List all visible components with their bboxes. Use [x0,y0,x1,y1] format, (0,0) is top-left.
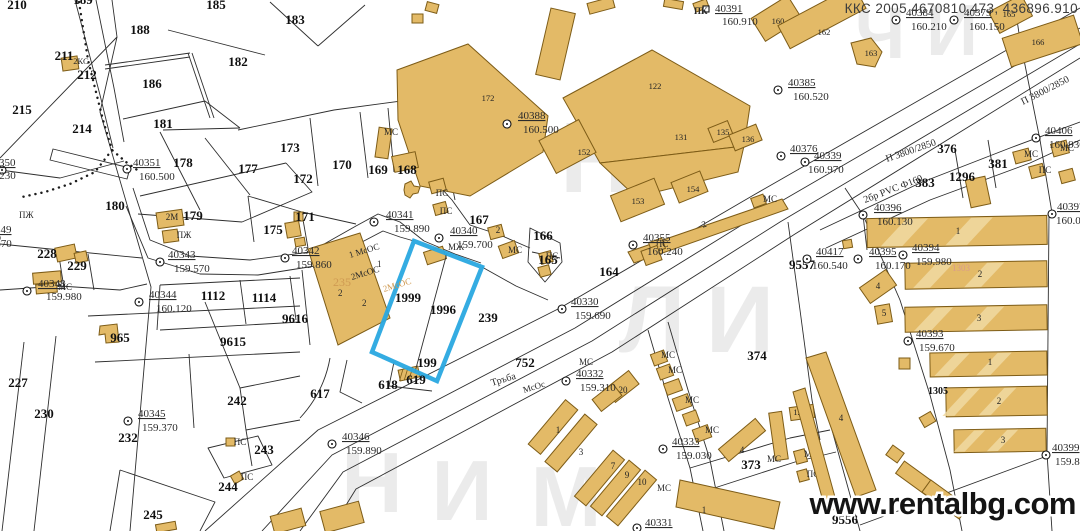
building-label: 166 [1032,37,1045,47]
survey-point-id-40397: 40397 [1057,201,1080,213]
parcel-label-965: 965 [110,330,130,345]
survey-point-dot-40379 [953,19,955,21]
survey-point-elevation-40339: 160.970 [808,164,844,176]
survey-point-elevation-40391: 160.910 [722,16,758,28]
building-label: 153 [632,196,645,206]
building [718,418,765,461]
parcel-label-183: 183 [285,12,305,27]
survey-point-id-40391: 40391 [715,3,743,15]
survey-point-id-40346: 40346 [342,431,370,443]
parcel-label-169: 169 [368,162,388,177]
parcel-label-166: 166 [533,228,553,243]
survey-point-elevation-40351: 160.500 [139,171,175,183]
parcel-label-1114: 1114 [252,290,277,305]
parcel-label-242: 242 [227,393,247,408]
building-label: МС [685,395,699,405]
survey-point-elevation-40343: 159.570 [174,263,210,275]
survey-point-dot-40331 [636,527,638,529]
survey-point-id-40345: 40345 [138,408,166,420]
parcel-label-210: 210 [7,0,27,12]
survey-point-id-40395: 40395 [869,246,897,258]
survey-point-elevation-40406: 160.930 [1049,139,1080,151]
parcel-label-752: 752 [515,355,535,370]
parcel-label-180: 180 [105,198,125,213]
survey-point-id-40394: 40394 [912,242,940,254]
building-label: 136 [742,134,755,144]
survey-point-elevation-40396: 160.130 [877,216,913,228]
building-label: ПС [234,437,247,447]
parcel-label-244: 244 [218,479,238,494]
survey-point-elevation-40393: 159.670 [919,342,955,354]
parcel-boundary-line [160,322,300,330]
parcel-boundary-line [88,254,94,290]
parcel-boundary-line [163,128,240,130]
survey-point-elevation-40332: 159.310 [580,382,616,394]
survey-point-dot-40346 [331,443,333,445]
survey-point-id-40340: 40340 [450,225,478,237]
parcel-label-188: 188 [130,22,150,37]
parcel-label-373: 373 [741,457,761,472]
survey-point-elevation-40349: 159.870 [0,238,12,250]
building [425,2,439,14]
building-label: 2 [496,225,501,235]
building-label: МС [705,425,719,435]
building-label: 162 [818,27,831,37]
parcel-boundary-line [340,360,362,403]
survey-point-elevation-40350: 160.230 [0,170,16,182]
survey-point-dot-40344 [138,301,140,303]
survey-point-id-40342: 40342 [292,245,320,257]
parcel-boundary-line [482,267,548,300]
survey-point-dot-40332 [565,380,567,382]
building [587,0,615,14]
survey-point-id-40341: 40341 [386,209,414,221]
building [155,521,176,531]
dotted-boundary-line [22,150,112,197]
building [663,0,683,10]
parcel-boundary-line [318,5,365,46]
parcel-label-175: 175 [263,222,283,237]
survey-point-elevation-40395: 160.170 [875,260,911,272]
parcel-boundary-line [238,98,424,130]
parcel-label-9615: 9615 [220,334,247,349]
site-watermark: www.rentalbg.com [809,486,1076,521]
survey-point-dot-40341 [373,221,375,223]
parcel-boundary-line [168,30,265,55]
survey-point-id-40331: 40331 [645,517,673,529]
building-label: МС [508,245,522,255]
parcel-boundary-line [96,0,124,142]
map-annotation: ПЖ [19,210,34,220]
survey-point-id-40417: 40417 [816,246,844,258]
parcel-boundary-line [205,101,240,128]
building-label: 172 [482,93,495,103]
building-label: 163 [865,48,878,58]
parcel-label-171: 171 [295,209,315,224]
building-label: 152 [578,147,591,157]
building-label: МС [668,365,682,375]
survey-point-dot-40348 [26,290,28,292]
survey-point-id-40349: 40349 [0,224,12,236]
crs-coordinates-label: ККС 2005 4670810.473, 436896.910 [845,1,1078,16]
building-label: ПЖ [177,230,192,240]
parcel-boundary-line [110,470,120,531]
survey-point-id-40343: 40343 [168,249,196,261]
parcel-label-199: 199 [417,355,437,370]
parcel-label-182: 182 [228,54,248,69]
survey-point-id-40388: 40388 [518,110,546,122]
building [899,358,910,369]
building-label: МС [763,194,777,204]
map-annotation: 2 [362,298,367,308]
survey-point-elevation-40355: 160.240 [647,246,683,258]
parcel-boundary-line [0,0,117,158]
survey-point-dot-40340 [438,237,440,239]
survey-point-id-40333: 40333 [672,436,700,448]
survey-point-id-40393: 40393 [916,328,944,340]
building [663,379,682,396]
survey-point-elevation-40330: 159.690 [575,310,611,322]
parcel-boundary-line [160,278,300,285]
survey-point-id-40399: 40399 [1052,442,1080,454]
parcel-boundary-line [0,284,147,290]
parcel-label-381: 381 [988,156,1008,171]
map-annotation: МС [767,454,781,464]
building-label: 9 [625,470,630,480]
survey-point-elevation-40384: 160.210 [911,21,947,33]
survey-point-dot-40343 [159,261,161,263]
parcel-label-165: 165 [538,252,558,267]
survey-point-elevation-40379: 160.150 [969,21,1005,33]
parcel-label-376: 376 [937,141,957,156]
survey-point-id-40406: 40406 [1045,125,1073,137]
survey-point-dot-40355 [632,244,634,246]
map-annotation: МС [657,483,671,493]
parcel-label-227: 227 [8,375,28,390]
survey-point-dot-40417 [806,258,808,260]
parcel-boundary-line [360,112,368,178]
building-label: 7 [611,461,616,471]
survey-point-elevation-40388: 160.500 [523,124,559,136]
survey-point-id-40330: 40330 [571,296,599,308]
parcel-boundary-line [1047,215,1052,531]
building-label: 2 [978,269,983,279]
parcel-label-215: 215 [12,102,32,117]
parcel-label-374: 374 [747,348,767,363]
survey-point-dot-40385 [777,89,779,91]
parcel-label-189: 189 [73,0,93,7]
survey-point-elevation-40340: 159.700 [457,239,493,251]
map-annotation: 1303 [952,263,971,273]
parcel-label-232: 232 [118,430,138,445]
parcel-label-619: 619 [406,372,426,387]
survey-point-dot-40388 [506,123,508,125]
survey-point-dot-40395 [857,258,859,260]
parcel-boundary-line [240,280,246,324]
survey-point-elevation-40341: 159.890 [394,223,430,235]
survey-point-elevation-40385: 160.520 [793,91,829,103]
survey-point-id-40396: 40396 [874,202,902,214]
survey-point-elevation-40397: 160.060 [1056,215,1080,227]
parcel-boundary-line [188,53,210,118]
building-label: 3 [579,447,584,457]
survey-point-dot-40330 [561,308,563,310]
parcel-boundary-line [240,388,300,430]
survey-point-elevation-40399: 159.8 [1055,456,1080,468]
survey-point-id-40350: 40350 [0,157,16,169]
parcel-label-228: 228 [37,246,57,261]
parcel-label-181: 181 [153,116,173,131]
building-label: 3 [1001,435,1006,445]
survey-point-dot-40394 [902,254,904,256]
parcel-label-164: 164 [599,264,619,279]
building-label: 1 [702,505,707,515]
parcel-label-214: 214 [72,121,92,136]
building-label: 10 [638,477,648,487]
map-annotation: Тръба [490,371,518,389]
parcel-label-1296: 1296 [949,169,976,184]
survey-point-id-40339: 40339 [814,150,842,162]
parcel-boundary-line [95,352,300,362]
building [842,239,852,248]
parcel-label-178: 178 [173,155,193,170]
survey-point-id-40332: 40332 [576,368,604,380]
survey-point-dot-40393 [907,340,909,342]
building [919,411,936,427]
parcel-label-177: 177 [238,161,258,176]
map-viewport[interactable]: ЧИНТЛИНИМ2КС1721221311521351361601621631… [0,0,1080,531]
survey-point-elevation-40333: 159.030 [676,450,712,462]
parcel-label-618: 618 [378,377,398,392]
survey-point-dot-40342 [284,257,286,259]
survey-point-id-40348: 40348 [38,278,66,290]
survey-point-dot-40399 [1045,454,1047,456]
survey-point-dot-40406 [1035,137,1037,139]
building-label: 131 [675,132,688,142]
map-annotation: МсОс [522,379,546,395]
map-annotation: ПК [694,6,708,16]
building-label: 2КС [73,56,89,66]
parcel-label-229: 229 [67,258,87,273]
building-label: 122 [649,81,662,91]
building-label: 2 [997,396,1002,406]
parcel-label-212: 212 [77,67,97,82]
parcel-label-1996: 1996 [430,302,457,317]
building-label: ПС [440,206,453,216]
survey-point-id-40344: 40344 [149,289,177,301]
survey-point-dot-40376 [780,155,782,157]
building-label: 3 [977,313,982,323]
parcel-label-173: 173 [280,140,300,155]
parcel-boundary-line [100,37,151,531]
parcel-label-211: 211 [55,48,74,63]
survey-point-id-40351: 40351 [133,157,161,169]
parcel-boundary-line [189,354,194,428]
survey-point-elevation-40342: 159.860 [296,259,332,271]
survey-point-dot-40345 [127,420,129,422]
parcel-boundary-line [88,306,300,316]
cadastral-map: ЧИНТЛИНИМ2КС1721221311521351361601621631… [0,0,1080,531]
building [412,14,423,23]
parcel-boundary-line [0,161,124,178]
survey-point-dot-40396 [862,214,864,216]
map-annotation: 2 [338,288,343,298]
survey-point-elevation-40394: 159.980 [916,256,952,268]
building-label: МС [661,350,675,360]
parcel-label-230: 230 [34,406,54,421]
building-label: 154 [687,184,701,194]
survey-point-id-40355: 40355 [643,232,671,244]
parcel-label-168: 168 [397,162,417,177]
building-label: ПС [436,188,449,198]
survey-point-dot-40397 [1051,213,1053,215]
parcel-label-186: 186 [142,76,162,91]
parcel-label-9616: 9616 [282,311,309,326]
building [676,480,780,529]
parcel-label-179: 179 [183,208,203,223]
building-label: 135 [717,127,730,137]
survey-point-elevation-40345: 159.370 [142,422,178,434]
survey-point-dot-40333 [662,448,664,450]
map-annotation: МС [579,357,593,367]
parcel-boundary-line [34,336,56,531]
survey-point-elevation-40344: 160.120 [156,303,192,315]
building [886,445,904,463]
survey-point-elevation-40348: 159.980 [46,291,82,303]
building-label: 2М [166,212,179,222]
building-label: 1 [988,357,993,367]
parcel-label-1305: 1305 [928,386,948,397]
parcel-boundary-line [246,430,252,466]
building [270,508,306,531]
building-label: МС [384,127,398,137]
building-label: ПС [241,472,254,482]
survey-point-dot-40384 [895,19,897,21]
map-annotation: 235 [333,275,351,289]
building-label: ПС [1039,165,1052,175]
parcel-boundary-line [2,342,24,531]
building-label: 1 [556,425,561,435]
watermark-letter: И [431,444,492,531]
parcel-label-243: 243 [254,442,274,457]
building-label: 4 [876,281,881,291]
survey-point-elevation-40417: 160.540 [812,260,848,272]
building [536,8,576,80]
parcel-label-1112: 1112 [201,288,226,303]
parcel-label-617: 617 [310,386,330,401]
building-label: 4 [740,445,745,455]
parcel-label-245: 245 [143,507,163,522]
building-label: МС [1024,149,1038,159]
building [682,410,699,426]
parcel-label-185: 185 [206,0,226,12]
building-label: 5 [882,308,887,318]
building-label: 1 [956,226,961,236]
survey-point-dot-40351 [126,168,128,170]
parcel-boundary-line [302,270,310,345]
parcel-label-170: 170 [332,157,352,172]
building [1059,168,1076,183]
survey-point-elevation-40346: 159.890 [346,445,382,457]
parcel-boundary-line [192,53,214,118]
building [404,181,420,198]
parcel-label-1999: 1999 [395,290,422,305]
survey-point-dot-40339 [804,161,806,163]
parcel-label-239: 239 [478,310,498,325]
survey-point-id-40385: 40385 [788,77,816,89]
building-label: 4 [839,413,844,423]
parcel-label-172: 172 [293,171,313,186]
